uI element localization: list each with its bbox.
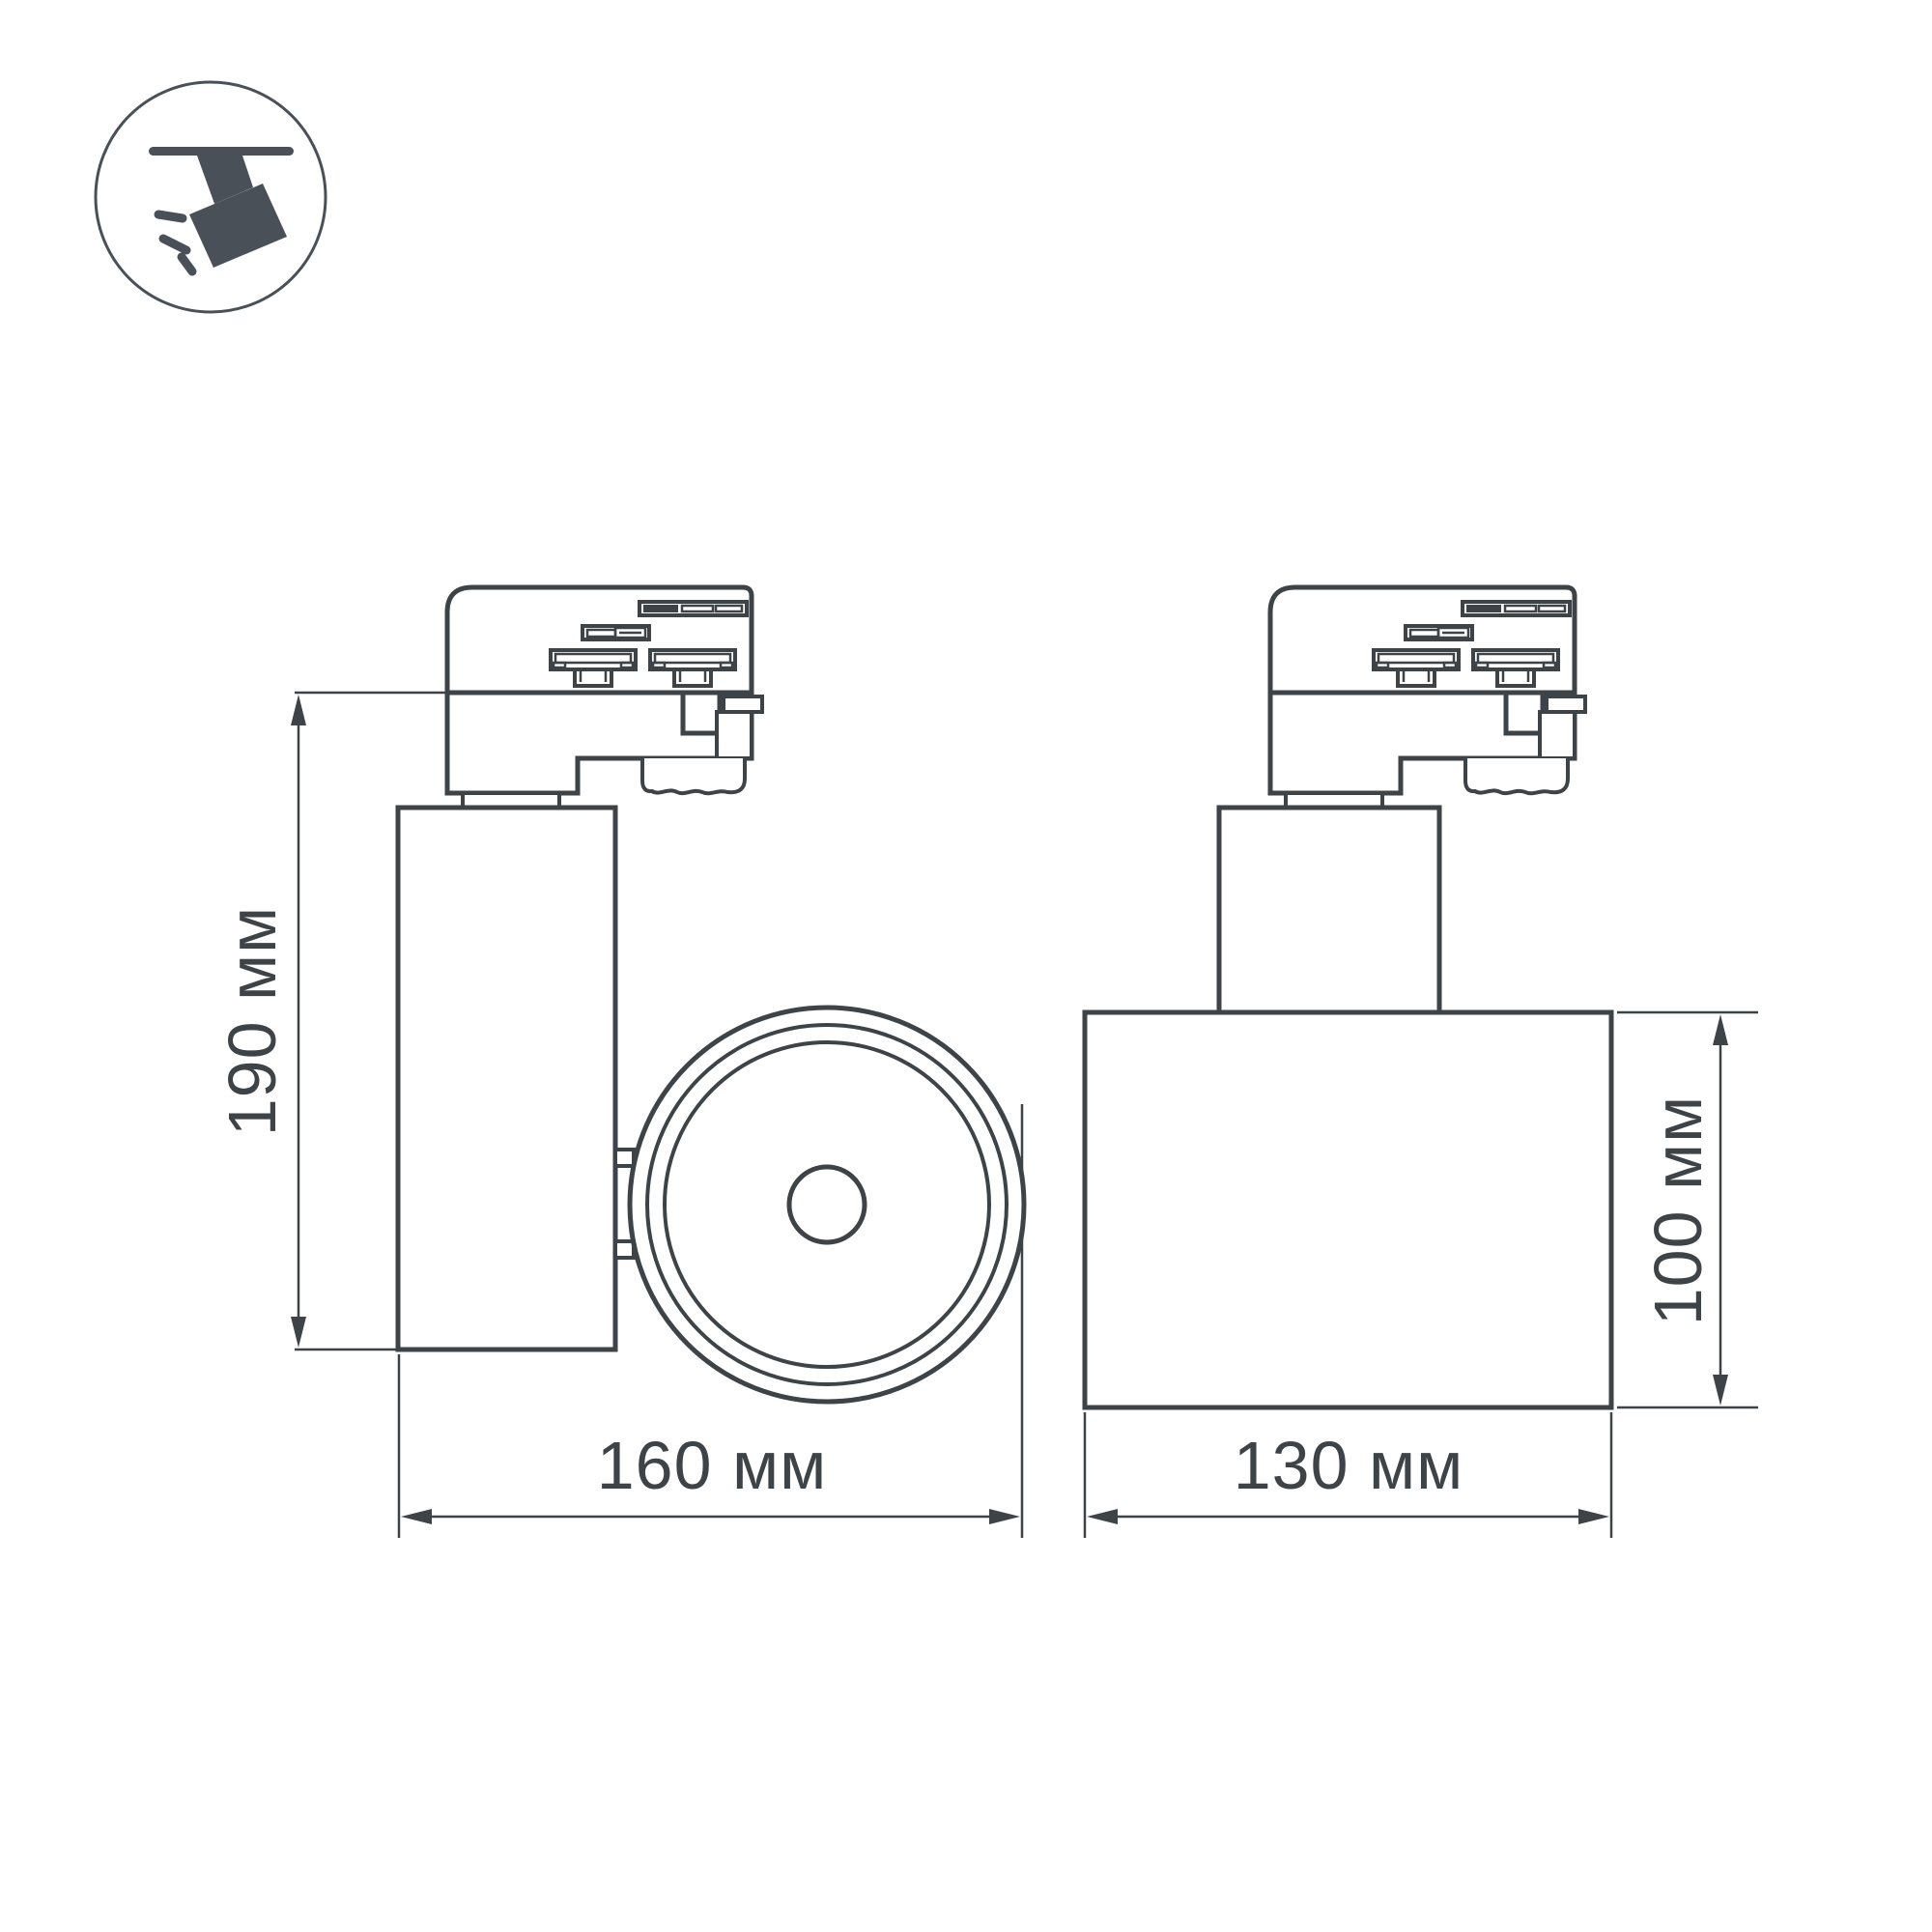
hinge-tab-top <box>615 1150 634 1166</box>
dimension-width-front: 130 мм <box>1085 1412 1611 1538</box>
icon-lamp-head <box>189 184 287 268</box>
icon-light-rays <box>158 214 192 271</box>
dimension-label-height-front: 100 мм <box>1640 1095 1716 1326</box>
dimension-label-width-side: 160 мм <box>597 1428 828 1503</box>
icon-circle <box>96 82 326 312</box>
side-view-body <box>398 808 615 1350</box>
icon-track-bar <box>149 147 294 156</box>
hinge-tab-bottom <box>615 1241 634 1258</box>
front-view-head <box>1085 1012 1611 1407</box>
side-view-adapter <box>447 587 762 808</box>
dimension-label-width-front: 130 мм <box>1234 1428 1464 1503</box>
side-view: 190 мм 160 мм <box>214 587 1024 1538</box>
lens-face <box>630 1008 1024 1402</box>
dimension-label-height-side: 190 мм <box>214 906 290 1137</box>
dimension-height-front: 100 мм <box>1617 1012 1758 1407</box>
front-view-body-column <box>1219 808 1439 1012</box>
front-view-adapter <box>1270 587 1585 808</box>
front-view: 100 мм 130 мм <box>1085 587 1758 1538</box>
dimension-drawing: 190 мм 160 мм 100 мм <box>0 0 1932 1932</box>
dimension-drawing-page: 190 мм 160 мм 100 мм <box>0 0 1932 1932</box>
track-spotlight-icon <box>96 82 326 312</box>
